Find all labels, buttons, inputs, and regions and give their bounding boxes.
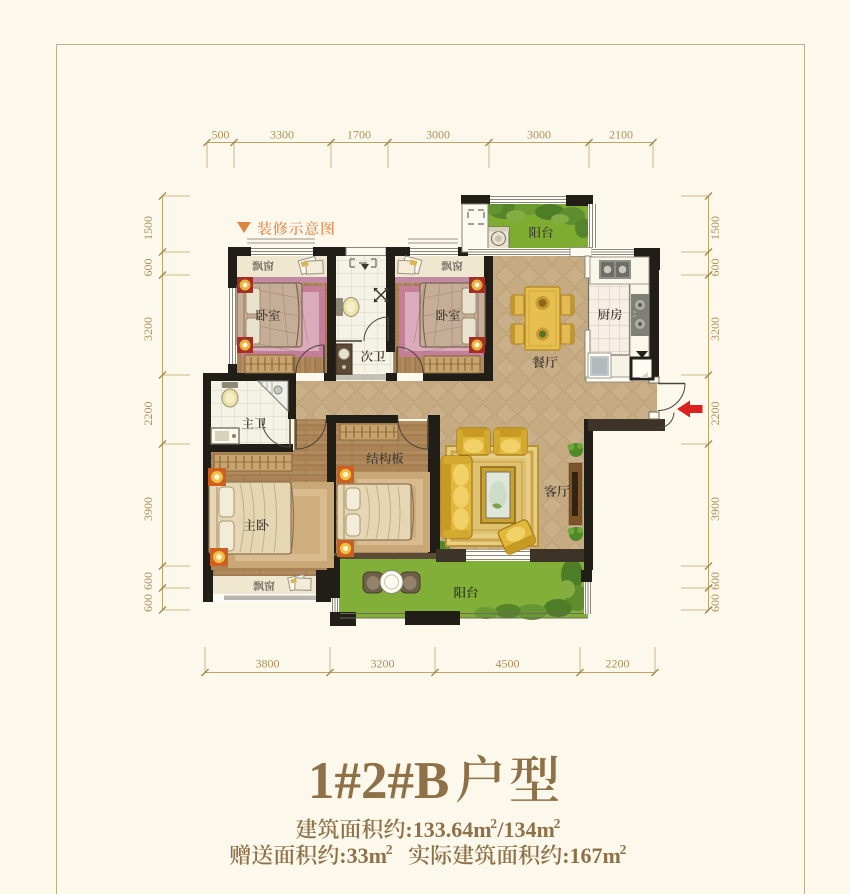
svg-text:3200: 3200 xyxy=(371,657,395,671)
svg-text:600: 600 xyxy=(141,594,155,612)
svg-text:500: 500 xyxy=(212,128,230,142)
svg-text:600: 600 xyxy=(708,572,722,590)
svg-text:2200: 2200 xyxy=(708,402,722,426)
svg-text:3900: 3900 xyxy=(708,497,722,521)
svg-text:3200: 3200 xyxy=(141,317,155,341)
svg-text:2200: 2200 xyxy=(141,402,155,426)
svg-text:3800: 3800 xyxy=(256,657,280,671)
svg-text:1#2#B: 1#2#B xyxy=(308,752,449,810)
svg-text:2: 2 xyxy=(386,842,393,857)
svg-text:2: 2 xyxy=(490,816,497,831)
svg-text:1500: 1500 xyxy=(141,216,155,240)
svg-text:2: 2 xyxy=(554,816,561,831)
svg-text:4500: 4500 xyxy=(496,657,520,671)
svg-text:600: 600 xyxy=(708,259,722,277)
svg-text:2200: 2200 xyxy=(606,657,630,671)
svg-text:3200: 3200 xyxy=(708,317,722,341)
svg-text:/134m: /134m xyxy=(496,817,554,842)
svg-text::167m: :167m xyxy=(562,843,621,868)
svg-text:2: 2 xyxy=(620,842,627,857)
svg-text:600: 600 xyxy=(141,259,155,277)
svg-text:3900: 3900 xyxy=(141,497,155,521)
svg-text:3300: 3300 xyxy=(270,128,294,142)
svg-text:3000: 3000 xyxy=(426,128,450,142)
svg-text:1700: 1700 xyxy=(347,128,371,142)
svg-text:600: 600 xyxy=(708,594,722,612)
svg-text::133.64m: :133.64m xyxy=(405,817,491,842)
svg-text::33m: :33m xyxy=(339,843,387,868)
svg-text:1500: 1500 xyxy=(708,216,722,240)
svg-text:3000: 3000 xyxy=(527,128,551,142)
svg-text:2100: 2100 xyxy=(609,128,633,142)
svg-text:600: 600 xyxy=(141,572,155,590)
